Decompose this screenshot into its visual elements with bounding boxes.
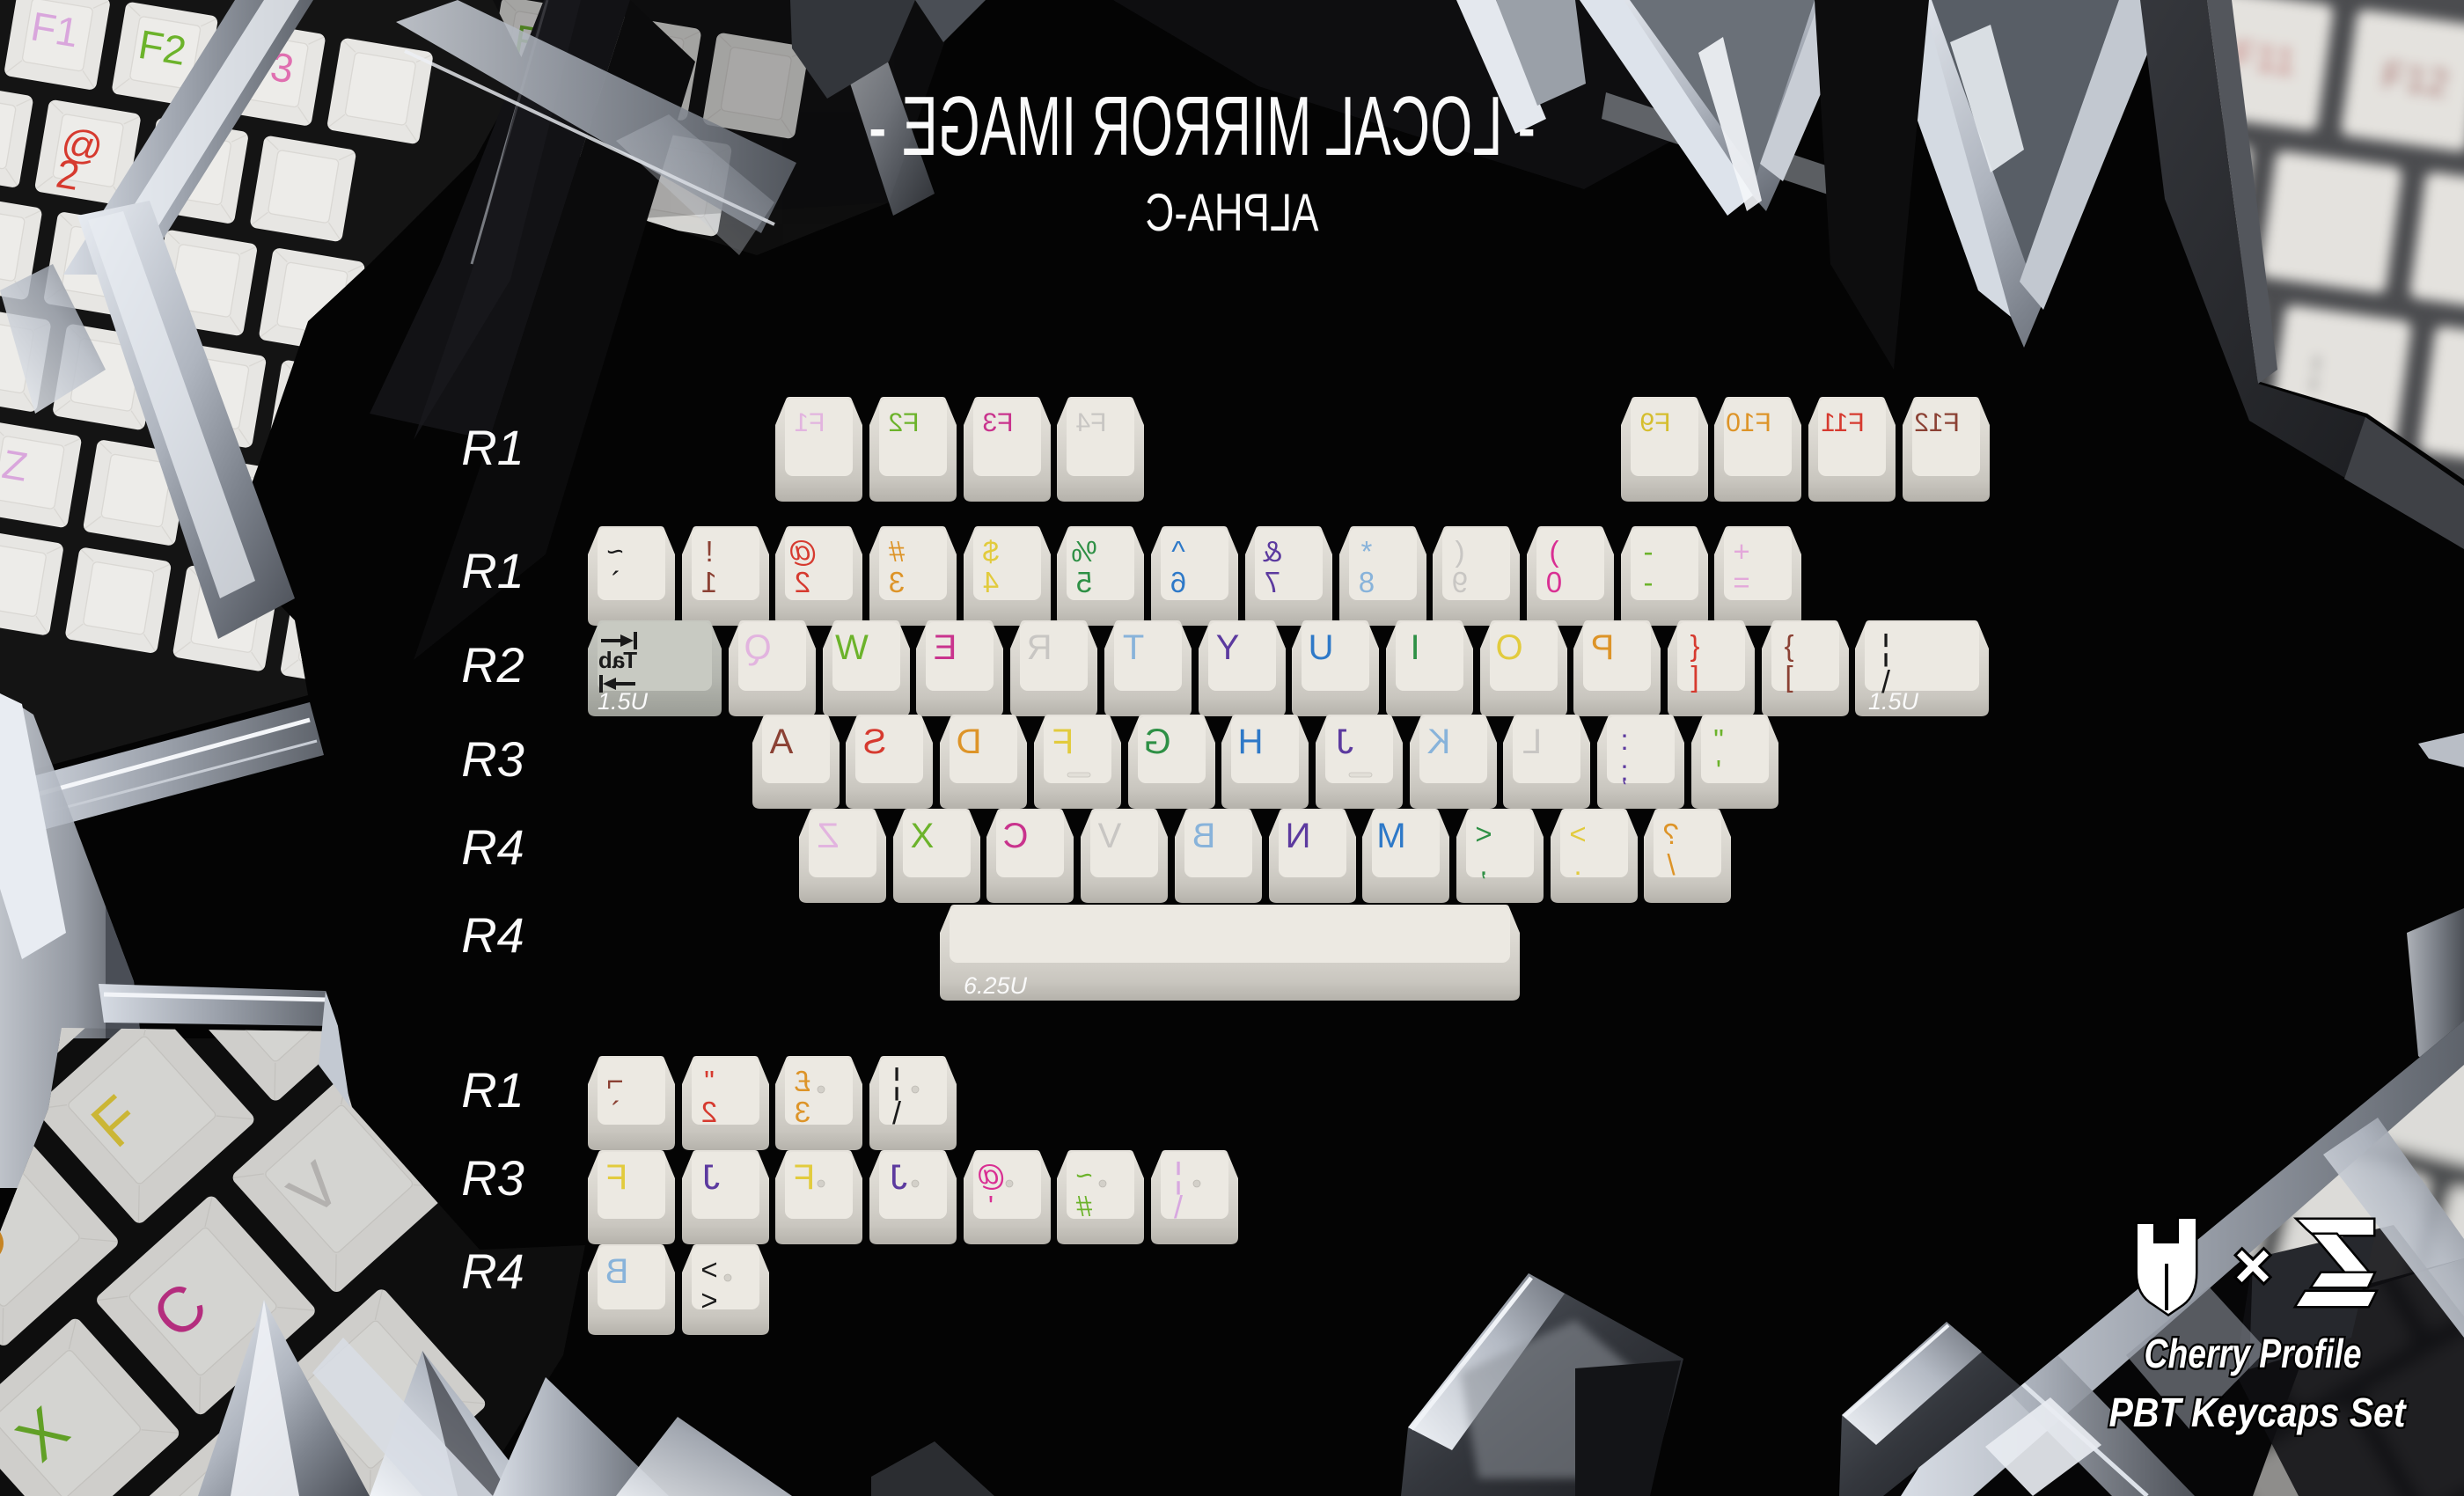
svg-text:PBT Keycaps Set: PBT Keycaps Set (2109, 1390, 2407, 1435)
svg-text:7: 7 (1265, 566, 1280, 598)
svg-text:F1: F1 (794, 408, 825, 437)
svg-text:F1: F1 (27, 3, 82, 55)
svg-text:L: L (1522, 722, 1542, 761)
svg-text:O: O (1495, 628, 1522, 667)
svg-text:": " (1713, 723, 1724, 756)
svg-text:C: C (1003, 817, 1029, 855)
svg-text:': ' (988, 1190, 994, 1222)
svg-text:`: ` (611, 566, 620, 598)
svg-text:$: $ (983, 535, 999, 568)
svg-text:5: 5 (1076, 566, 1092, 598)
svg-text:3: 3 (889, 566, 905, 598)
svg-text:>: > (700, 1253, 717, 1286)
svg-text:J: J (890, 1158, 907, 1197)
svg-text:J: J (1336, 722, 1353, 761)
svg-text:F12: F12 (2380, 54, 2452, 106)
svg-text:M: M (1376, 817, 1405, 855)
svg-text::: : (1620, 723, 1628, 756)
svg-text:V: V (1097, 817, 1121, 855)
svg-text:R1: R1 (461, 1062, 524, 1118)
svg-text:3: 3 (795, 1096, 810, 1128)
svg-text:^: ^ (1171, 535, 1185, 568)
svg-text:2: 2 (701, 1096, 717, 1128)
svg-text:(: ( (1456, 535, 1465, 568)
svg-text:Q: Q (744, 628, 771, 667)
svg-text:×: × (2234, 1231, 2271, 1302)
svg-text:': ' (1716, 754, 1721, 787)
svg-text:[: [ (1690, 660, 1698, 693)
svg-text:<: < (1475, 818, 1492, 850)
svg-text:F4: F4 (1075, 408, 1106, 437)
svg-text:`: ` (611, 1096, 620, 1128)
svg-text:;: ; (1620, 754, 1628, 787)
svg-text:D: D (957, 722, 982, 761)
svg-text:/: / (1667, 848, 1676, 881)
svg-text:R2: R2 (461, 637, 524, 693)
svg-text:F: F (606, 1158, 627, 1197)
svg-text:#: # (888, 535, 905, 568)
svg-text:6.25U: 6.25U (964, 972, 1028, 999)
svg-text:Tab: Tab (598, 647, 637, 673)
svg-text:R: R (1027, 628, 1052, 667)
svg-text:Y: Y (1216, 628, 1240, 667)
svg-text:F11: F11 (1821, 408, 1864, 437)
svg-text:R4: R4 (461, 819, 524, 875)
svg-text:£: £ (795, 1065, 810, 1097)
svg-text:ALPHA-C: ALPHA-C (1146, 183, 1319, 242)
svg-text:2: 2 (795, 566, 810, 598)
svg-text:%: % (1071, 535, 1096, 568)
svg-text:+: + (1733, 535, 1749, 568)
svg-text:4: 4 (983, 566, 999, 598)
svg-text:]: ] (1785, 660, 1793, 693)
svg-text:): ) (1550, 535, 1559, 568)
svg-text:F2: F2 (136, 21, 190, 74)
svg-text:0: 0 (1546, 566, 1562, 598)
svg-text:Z: Z (818, 817, 839, 855)
svg-text:=: = (1733, 566, 1749, 598)
svg-text:W: W (835, 628, 869, 667)
svg-text:Cherry Profile: Cherry Profile (2145, 1331, 2362, 1376)
svg-text:R3: R3 (461, 1150, 524, 1206)
svg-text:R4: R4 (461, 1243, 524, 1299)
svg-text:~: ~ (1075, 1159, 1092, 1192)
svg-text:@: @ (976, 1159, 1006, 1192)
svg-text:P: P (1591, 628, 1615, 667)
svg-text:<: < (700, 1284, 717, 1316)
svg-text:R1: R1 (461, 420, 524, 475)
svg-text:T: T (1123, 628, 1144, 667)
svg-text:I: I (1410, 628, 1419, 667)
svg-text:1.5U: 1.5U (1868, 688, 1919, 715)
svg-text:F9: F9 (1639, 408, 1670, 437)
svg-text:-: - (1644, 566, 1654, 598)
svg-text:A: A (769, 722, 793, 761)
svg-text:1.5U: 1.5U (598, 688, 649, 715)
svg-text:X: X (911, 817, 935, 855)
svg-text:~: ~ (606, 535, 623, 568)
svg-text:>: > (1569, 818, 1586, 850)
svg-text:J: J (702, 1158, 720, 1197)
svg-text:F: F (1052, 722, 1074, 761)
svg-text:8: 8 (1359, 566, 1375, 598)
svg-text:{: { (1690, 629, 1699, 662)
svg-text:#: # (1075, 1190, 1092, 1222)
svg-text:,: , (1479, 848, 1487, 881)
svg-text:G: G (1143, 722, 1170, 761)
svg-text:@: @ (788, 535, 818, 568)
svg-text:K: K (1426, 722, 1450, 761)
svg-text:*: * (1360, 535, 1372, 568)
svg-text:N: N (1286, 817, 1311, 855)
svg-text:R1: R1 (461, 543, 524, 598)
svg-text:9: 9 (1452, 566, 1468, 598)
svg-text:": " (704, 1065, 715, 1097)
svg-text:-: - (1644, 535, 1654, 568)
svg-text:U: U (1309, 628, 1334, 667)
svg-text:E: E (934, 628, 957, 667)
svg-text:F3: F3 (982, 408, 1013, 437)
svg-text:B: B (605, 1252, 629, 1291)
svg-text:F: F (794, 1158, 815, 1197)
svg-text:B: B (1192, 817, 1216, 855)
svg-text:- LOCAL MIRROR IMAGE -: - LOCAL MIRROR IMAGE - (869, 79, 1536, 173)
svg-text:\: \ (892, 1095, 901, 1131)
svg-text:R4: R4 (461, 907, 524, 963)
svg-text:!: ! (705, 535, 713, 568)
svg-text:F12: F12 (1914, 408, 1960, 437)
svg-text:1: 1 (701, 566, 717, 598)
svg-text:S: S (863, 722, 887, 761)
svg-text:\: \ (1174, 1189, 1183, 1225)
svg-text:¦: ¦ (1881, 628, 1890, 667)
svg-text:¬: ¬ (606, 1065, 623, 1097)
svg-text:}: } (1784, 629, 1793, 662)
svg-text:&: & (1263, 535, 1282, 568)
svg-text:F2: F2 (888, 408, 919, 437)
svg-text:?: ? (1663, 818, 1679, 850)
svg-text:6: 6 (1170, 566, 1186, 598)
svg-text:F10: F10 (1726, 408, 1771, 437)
svg-text:.: . (1573, 848, 1581, 881)
svg-text:H: H (1238, 722, 1264, 761)
svg-text:R3: R3 (461, 731, 524, 787)
